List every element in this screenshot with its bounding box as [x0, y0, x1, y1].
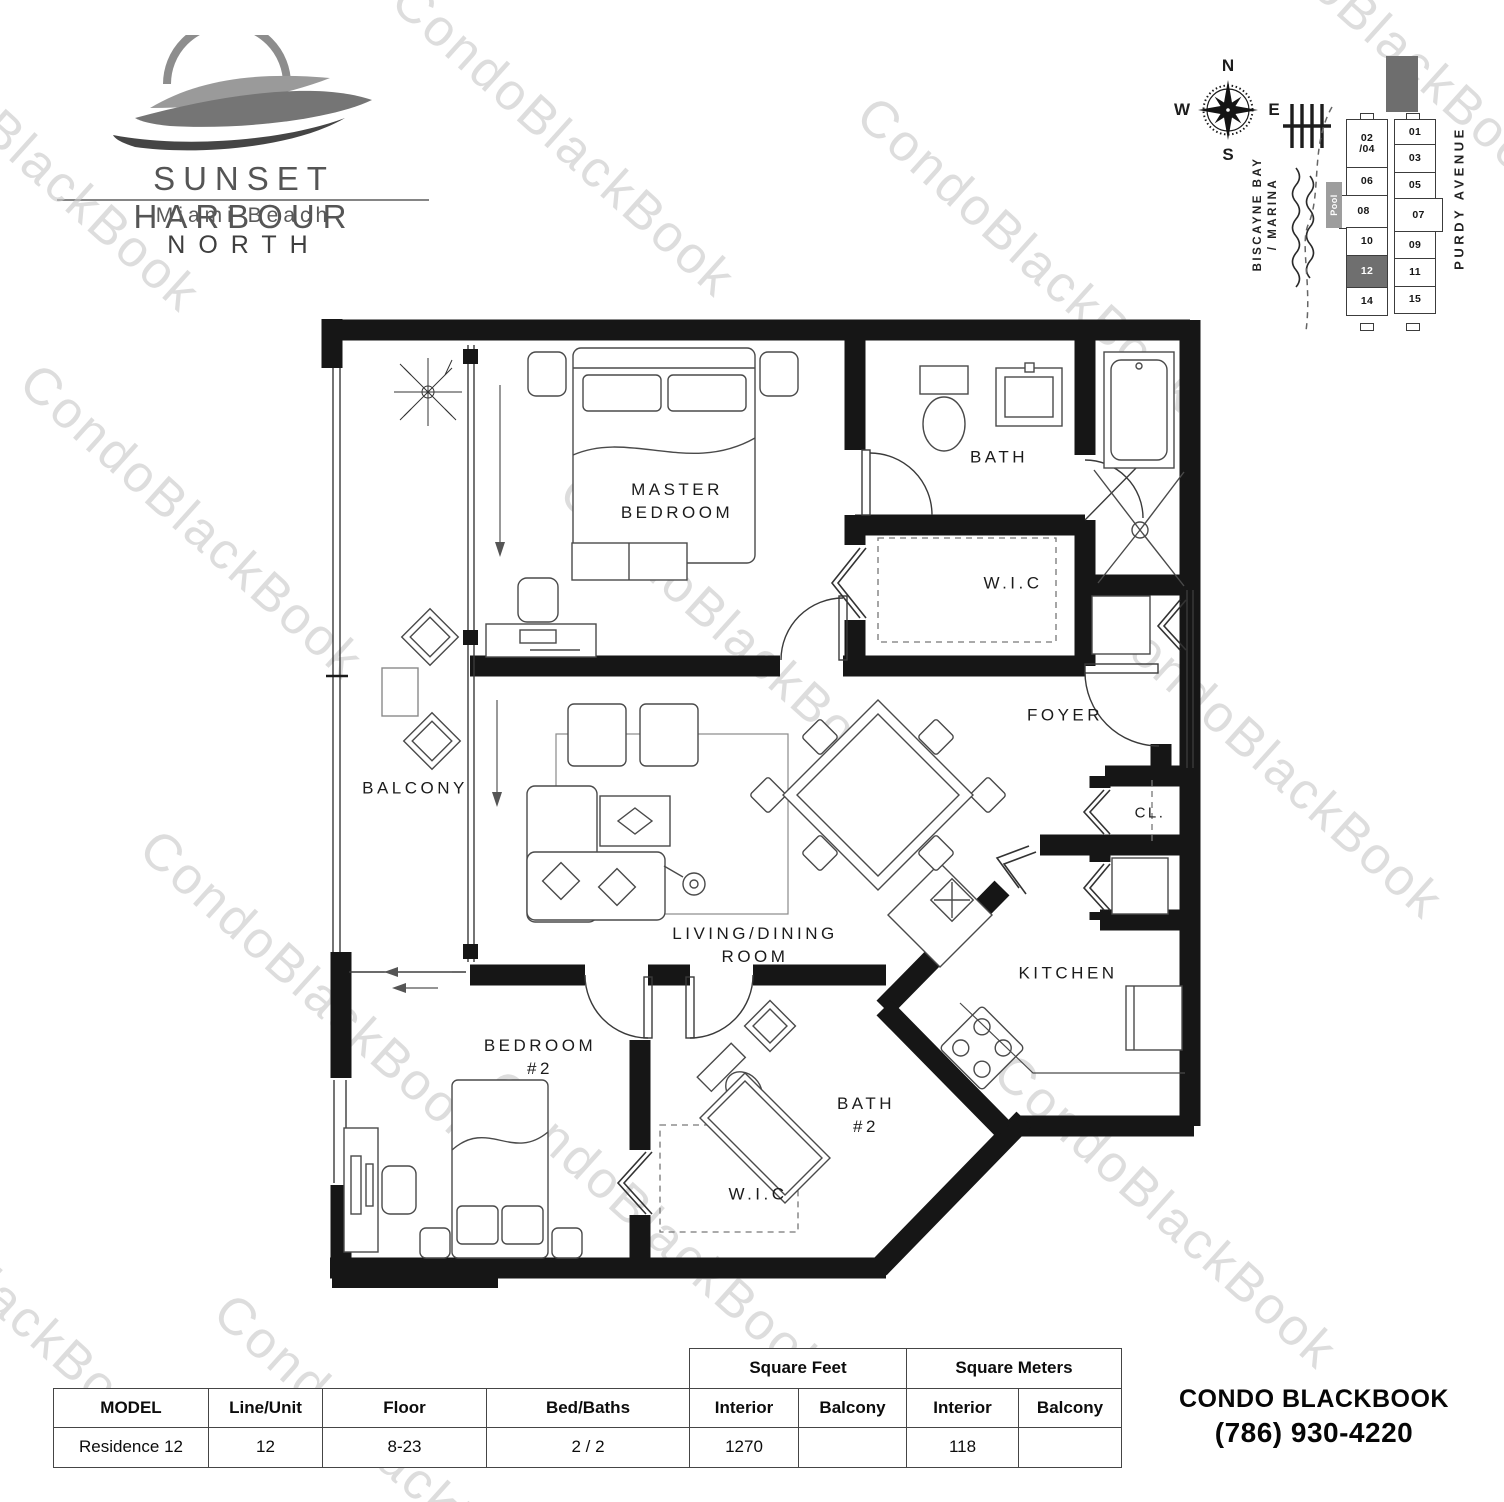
balcony-furniture — [382, 609, 460, 770]
cell-sqft-balcony — [799, 1427, 907, 1467]
room-label-master-bedroom: MASTER BEDROOM — [621, 478, 733, 524]
spec-table: Square Feet Square Meters MODEL Line/Uni… — [53, 1348, 1122, 1468]
group-header-square-feet: Square Feet — [690, 1349, 907, 1389]
room-label-living-dining: LIVING/DINING ROOM — [672, 922, 837, 968]
col-header-floor: Floor — [323, 1388, 487, 1427]
col-header-sqft-balcony: Balcony — [799, 1388, 907, 1427]
plant — [394, 358, 462, 426]
spec-table-group-row: Square Feet Square Meters — [54, 1349, 1122, 1389]
col-header-sqft-interior: Interior — [690, 1388, 799, 1427]
pantry-shelf — [1112, 858, 1168, 914]
spec-table-header-row: MODEL Line/Unit Floor Bed/Baths Interior… — [54, 1388, 1122, 1427]
room-label-wic2: W.I.C — [728, 1183, 787, 1206]
room-label-balcony: BALCONY — [362, 777, 468, 800]
direction-arrows — [398, 385, 500, 988]
room-label-foyer: FOYER — [1027, 704, 1103, 727]
master-bed — [528, 348, 798, 580]
floorplan-drawing — [0, 0, 1504, 1502]
cell-sqm-balcony — [1019, 1427, 1122, 1467]
master-desk — [486, 578, 596, 657]
spec-table-data-row: Residence 12 12 8-23 2 / 2 1270 118 — [54, 1427, 1122, 1467]
col-header-model: MODEL — [54, 1388, 209, 1427]
slider-clips — [463, 349, 478, 959]
room-label-bath: BATH — [970, 446, 1028, 469]
main-bath-fixtures — [920, 352, 1174, 468]
footer-phone: (786) 930-4220 — [1140, 1417, 1488, 1449]
room-label-wic-master: W.I.C — [983, 572, 1042, 595]
cell-sqm-interior: 118 — [907, 1427, 1019, 1467]
living-room-set — [527, 704, 788, 922]
col-header-bed-baths: Bed/Baths — [487, 1388, 690, 1427]
footer-company: CONDO BLACKBOOK — [1140, 1385, 1488, 1414]
cell-model: Residence 12 — [54, 1427, 209, 1467]
room-label-kitchen: KITCHEN — [1018, 962, 1117, 985]
spec-table-empty-cell — [54, 1349, 690, 1389]
footer-brand: CONDO BLACKBOOK (786) 930-4220 — [1140, 1385, 1488, 1449]
group-header-square-meters: Square Meters — [907, 1349, 1122, 1389]
room-label-bath2: BATH #2 — [837, 1092, 895, 1138]
bedroom2-set — [344, 1080, 582, 1258]
bath2-fixtures — [697, 1001, 830, 1203]
storage-closet — [1092, 596, 1150, 654]
wall-block — [332, 1262, 498, 1288]
cell-bed-baths: 2 / 2 — [487, 1427, 690, 1467]
cell-sqft-interior: 1270 — [690, 1427, 799, 1467]
col-header-line-unit: Line/Unit — [209, 1388, 323, 1427]
glazing — [333, 345, 1193, 1183]
cell-floor: 8-23 — [323, 1427, 487, 1467]
col-header-sqm-balcony: Balcony — [1019, 1388, 1122, 1427]
room-label-closet: CL. — [1135, 802, 1166, 825]
col-header-sqm-interior: Interior — [907, 1388, 1019, 1427]
fridge — [1126, 986, 1182, 1050]
shower — [1094, 470, 1184, 586]
cell-line-unit: 12 — [209, 1427, 323, 1467]
kitchen-island — [888, 863, 992, 967]
room-label-bedroom2: BEDROOM #2 — [484, 1034, 596, 1080]
